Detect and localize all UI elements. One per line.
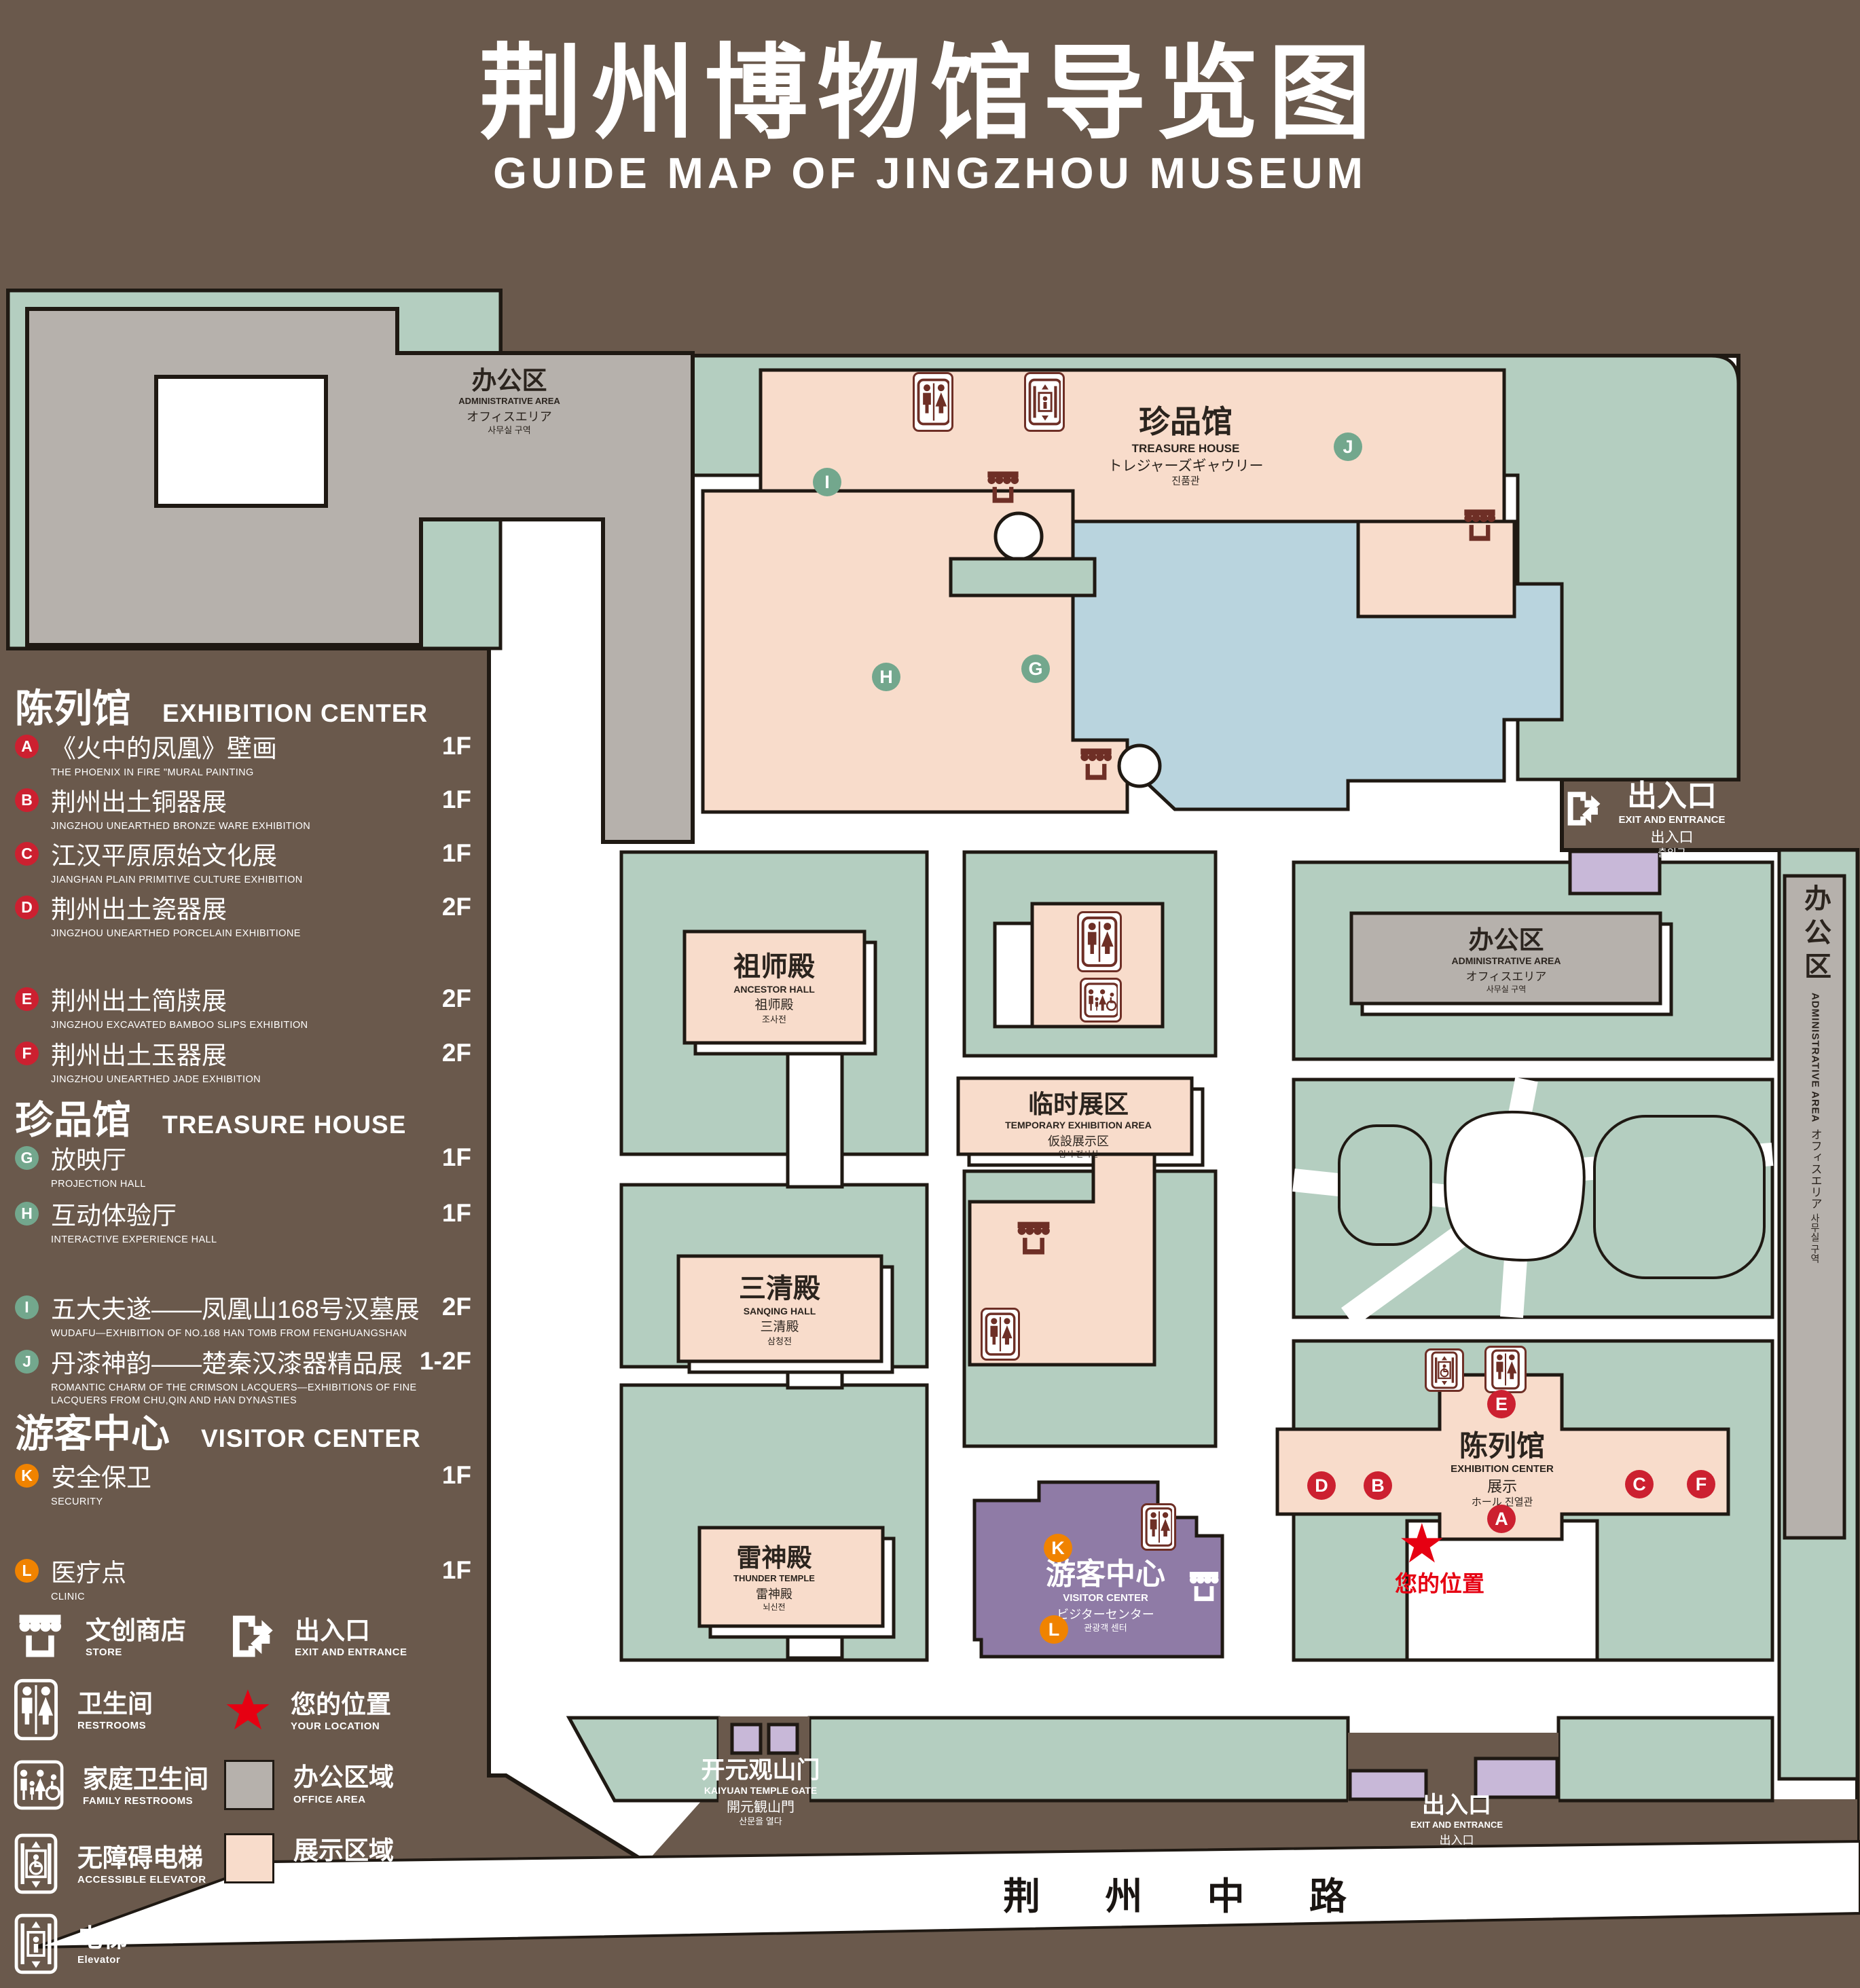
marker-b: B xyxy=(1364,1471,1392,1500)
legend-item-h: H 互动体验厅1F INTERACTIVE EXPERIENCE HALL xyxy=(15,1195,471,1247)
restroom-icon xyxy=(14,1678,58,1744)
guide-map-poster: 荆州博物馆导览图 GUIDE MAP OF JINGZHOU MUSEUM xyxy=(0,0,1860,1988)
legend-symbol-display-area: 展示区域DISPLAY AREA xyxy=(224,1833,394,1883)
legend-section-treasure-house: 珍品馆TREASURE HOUSE xyxy=(15,1089,406,1145)
marker-e: E xyxy=(1487,1390,1516,1418)
legend-section-exhibition-center: 陈列馆EXHIBITION CENTER xyxy=(15,678,428,733)
marker-g: G xyxy=(1021,655,1050,683)
legend-marker-d: D xyxy=(15,896,39,919)
legend-marker-c: C xyxy=(15,842,39,866)
marker-c: C xyxy=(1625,1470,1654,1498)
store-icon xyxy=(14,1610,67,1665)
sanqing-hall-label: 三清殿 SANQING HALL 三清殿 삼청전 xyxy=(739,1274,820,1346)
legend-marker-j: J xyxy=(15,1350,39,1374)
family-restroom-icon xyxy=(1080,978,1122,1023)
elevator-icon xyxy=(1024,372,1065,432)
legend-marker-k: K xyxy=(15,1464,39,1488)
exit-ne-label: 出入口 EXIT AND ENTRANCE 出入口 출입구 xyxy=(1619,779,1726,859)
exit-ne-icon xyxy=(1561,786,1603,831)
marker-j: J xyxy=(1334,432,1362,461)
treasure-house-label: 珍品馆 TREASURE HOUSE トレジャーズギャウリー 진품관 xyxy=(1108,405,1264,487)
legend-item-f: F 荆州出土玉器展2F JINGZHOU UNEARTHED JADE EXHI… xyxy=(15,1035,471,1086)
legend-symbol-family-restrooms: 家庭卫生间FAMILY RESTROOMS xyxy=(14,1760,208,1814)
store-icon xyxy=(1460,505,1499,546)
legend-item-j: J 丹漆神韵——楚秦汉漆器精品展1-2F ROMANTIC CHARM OF T… xyxy=(15,1343,471,1407)
legend-marker-a: A xyxy=(15,735,39,758)
store-icon xyxy=(1013,1217,1054,1259)
marker-i: I xyxy=(813,468,841,496)
legend-symbol-store: 文创商店STORE xyxy=(14,1610,186,1665)
marker-k: K xyxy=(1044,1534,1072,1562)
exhibition-center-label: 陈列馆 EXHIBITION CENTER 展示 ホール 진열관 xyxy=(1451,1430,1554,1509)
office-nw-label: 办公区 ADMINISTRATIVE AREA オフィスエリア 사무실 구역 xyxy=(458,367,560,436)
marker-l: L xyxy=(1040,1615,1068,1644)
accessible-elevator-icon xyxy=(14,1833,58,1898)
legend-marker-l: L xyxy=(15,1559,39,1583)
store-icon xyxy=(1186,1567,1222,1606)
ancestor-hall-label: 祖师殿 ANCESTOR HALL 祖师殿 조사전 xyxy=(733,952,815,1025)
accessible-elevator-icon xyxy=(1425,1348,1464,1392)
store-icon xyxy=(1076,744,1116,785)
restroom-icon xyxy=(1141,1503,1176,1551)
office-area-swatch xyxy=(224,1760,274,1810)
legend-symbol-accessible-elevator: 无障碍电梯ACCESSIBLE ELEVATOR xyxy=(14,1833,206,1898)
family-restroom-icon xyxy=(14,1760,64,1814)
legend-item-e: E 荆州出土简牍展2F JINGZHOU EXCAVATED BAMBOO SL… xyxy=(15,980,471,1032)
legend-symbol-restrooms: 卫生间RESTROOMS xyxy=(14,1678,153,1744)
restroom-icon xyxy=(913,372,953,432)
temporary-exhibition-label: 临时展区 TEMPORARY EXHIBITION AREA 仮設展示区 임시 … xyxy=(1005,1090,1152,1160)
legend-item-d: D 荆州出土瓷器展2F JINGZHOU UNEARTHED PORCELAIN… xyxy=(15,889,471,940)
restroom-icon xyxy=(1077,911,1122,972)
office-east-label: 办公区 ADMINISTRATIVE AREA オフィスエリア 사무실 구역 xyxy=(1786,884,1844,1529)
legend-symbol-exit: 出入口EXIT AND ENTRANCE xyxy=(224,1610,407,1665)
road-label: 荆 州 中 路 xyxy=(1003,1866,1374,1920)
exit-south-label: 出入口 EXIT AND ENTRANCE 出入口 출입구 xyxy=(1410,1792,1503,1858)
location-star-icon xyxy=(224,1688,272,1736)
restroom-icon xyxy=(981,1308,1020,1361)
legend-symbol-elevator: 电梯Elevator xyxy=(14,1913,128,1978)
your-location-label: 您的位置 xyxy=(1395,1566,1484,1598)
legend-item-k: K 安全保卫1F SECURITY xyxy=(15,1457,471,1509)
legend-marker-h: H xyxy=(15,1202,39,1226)
thunder-temple-label: 雷神殿 THUNDER TEMPLE 雷神殿 뇌신전 xyxy=(733,1544,815,1613)
legend-item-c: C 江汉平原原始文化展1F JIANGHAN PLAIN PRIMITIVE C… xyxy=(15,835,471,887)
restroom-icon xyxy=(1484,1346,1527,1393)
marker-d: D xyxy=(1307,1471,1336,1500)
your-location-star-icon: ★ xyxy=(1398,1517,1446,1571)
legend-item-l: L 医疗点1F CLINIC xyxy=(15,1552,471,1604)
office-mid-label: 办公区 ADMINISTRATIVE AREA オフィスエリア 사무실 구역 xyxy=(1452,926,1561,995)
marker-f: F xyxy=(1687,1470,1715,1498)
legend-marker-i: I xyxy=(15,1295,39,1319)
legend-marker-b: B xyxy=(15,788,39,812)
legend-item-g: G 放映厅1F PROJECTION HALL xyxy=(15,1139,471,1191)
legend-marker-f: F xyxy=(15,1042,39,1065)
kaiyuan-gate-label: 开元观山门 KAIYUAN TEMPLE GATE 開元観山門 산문을 열다 xyxy=(701,1757,820,1827)
store-icon xyxy=(983,467,1023,508)
legend-symbol-office-area: 办公区域OFFICE AREA xyxy=(224,1760,394,1810)
legend-section-visitor-center: 游客中心VISITOR CENTER xyxy=(15,1403,421,1458)
marker-h: H xyxy=(872,663,900,691)
legend-marker-g: G xyxy=(15,1146,39,1170)
legend-item-b: B 荆州出土铜器展1F JINGZHOU UNEARTHED BRONZE WA… xyxy=(15,781,471,833)
elevator-icon xyxy=(14,1913,58,1978)
legend-marker-e: E xyxy=(15,987,39,1011)
marker-a: A xyxy=(1487,1505,1516,1533)
exit-icon xyxy=(224,1610,276,1665)
legend-symbol-your-location: 您的位置YOUR LOCATION xyxy=(224,1688,391,1736)
display-area-swatch xyxy=(224,1833,274,1883)
legend-item-i: I 五大夫遂——凤凰山168号汉墓展2F WUDAFU—EXHIBITION O… xyxy=(15,1289,471,1340)
legend-item-a: A 《火中的凤凰》壁画1F THE PHOENIX IN FIRE "MURAL… xyxy=(15,728,471,779)
